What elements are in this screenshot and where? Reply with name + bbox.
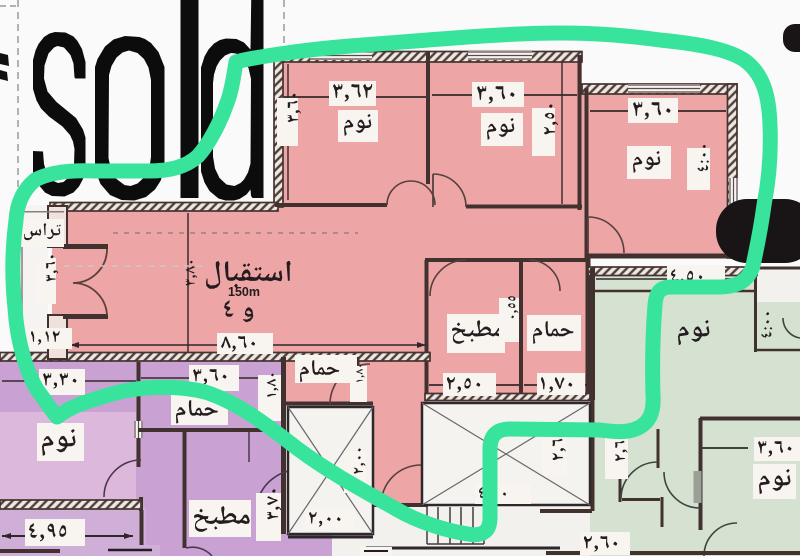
svg-text:150m: 150m — [228, 285, 260, 299]
